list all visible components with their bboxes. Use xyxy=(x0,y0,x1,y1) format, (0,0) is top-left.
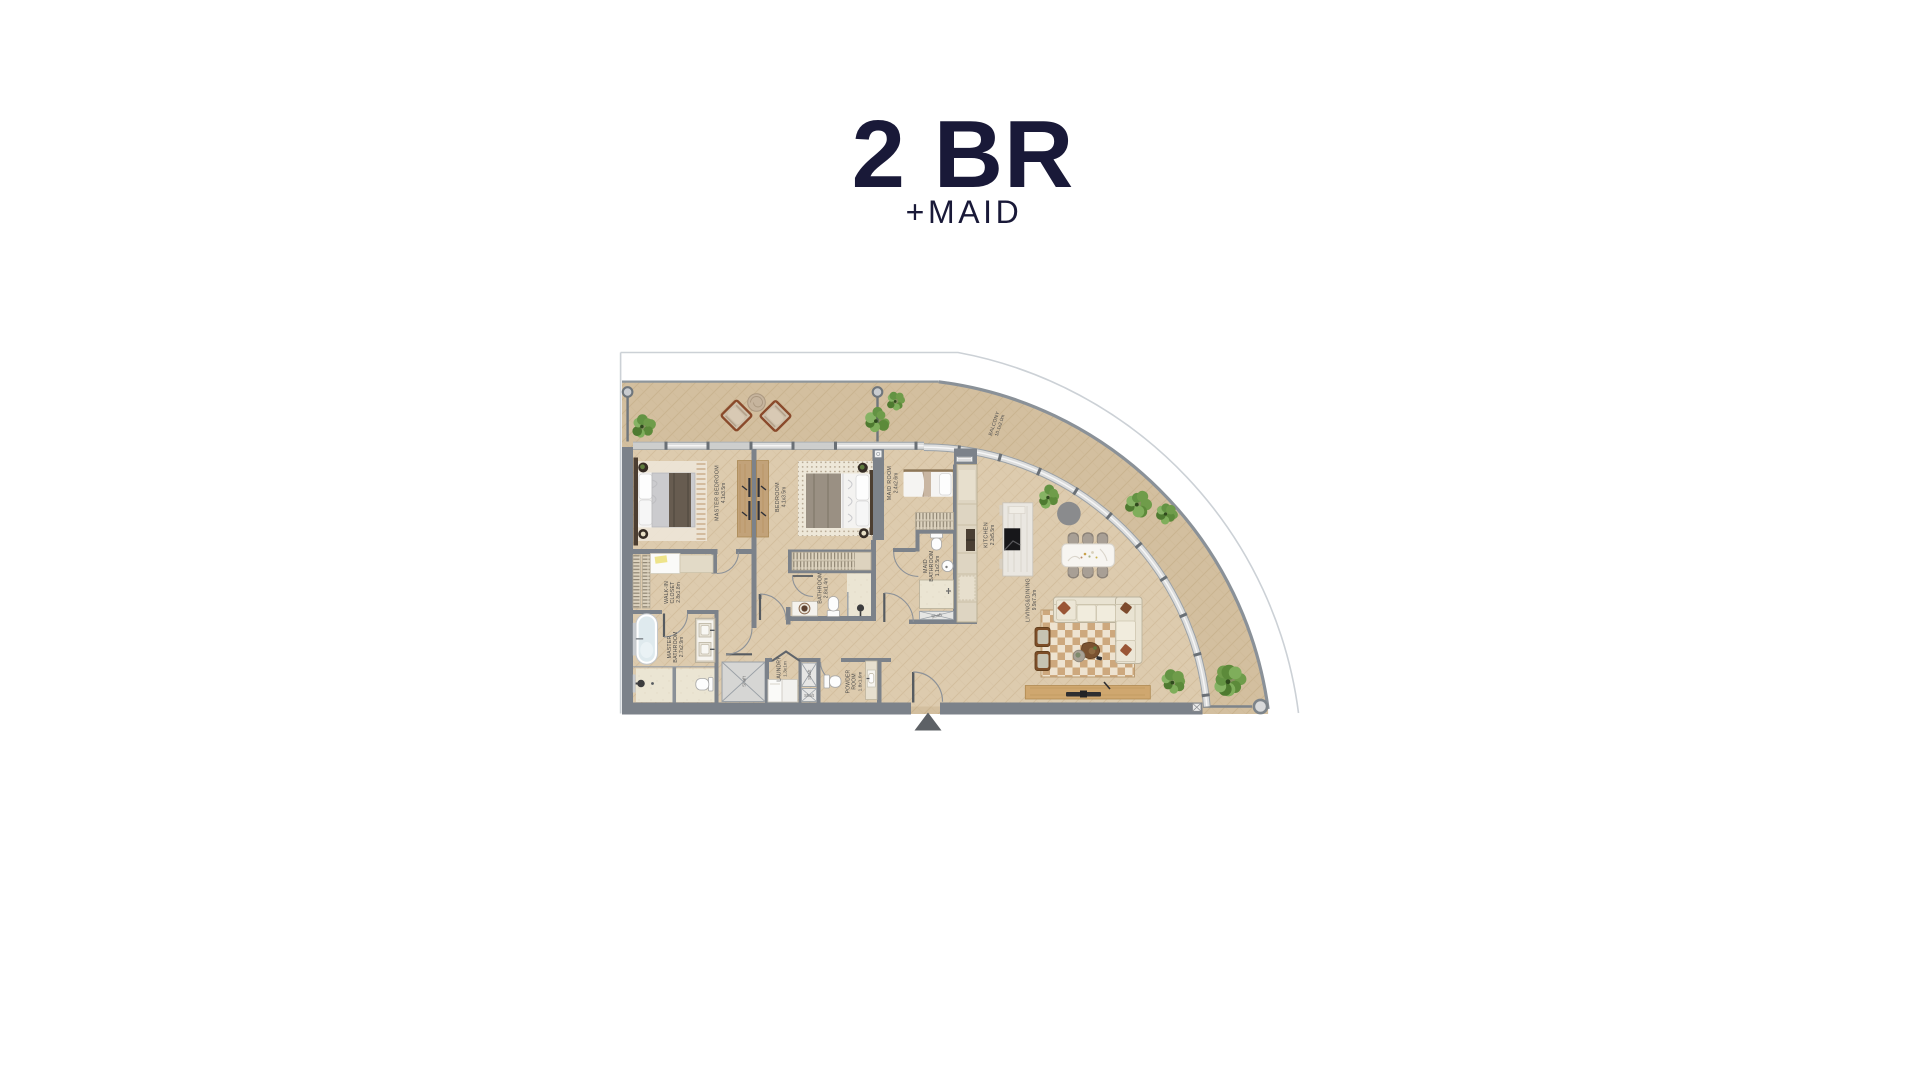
svg-text:Shaft: Shaft xyxy=(804,693,815,698)
svg-text:2.8x1.8m: 2.8x1.8m xyxy=(676,582,682,603)
svg-text:LIVING&DINING: LIVING&DINING xyxy=(1026,578,1032,622)
svg-text:1.8x1.6m: 1.8x1.6m xyxy=(858,672,864,692)
svg-text:2.7x2.9m: 2.7x2.9m xyxy=(679,637,685,658)
svg-text:1.3x1m: 1.3x1m xyxy=(783,661,789,677)
svg-text:4.1x3.5m: 4.1x3.5m xyxy=(721,483,727,504)
svg-text:9.9x7.3m: 9.9x7.3m xyxy=(1032,590,1038,611)
svg-text:1.1x2.5m: 1.1x2.5m xyxy=(935,556,941,577)
svg-text:MASTER BEDROOM: MASTER BEDROOM xyxy=(715,465,721,521)
svg-text:2.4x2.6m: 2.4x2.6m xyxy=(894,473,900,494)
svg-text:ROOM: ROOM xyxy=(852,673,858,689)
svg-text:2.8x1.4m: 2.8x1.4m xyxy=(824,578,830,599)
svg-text:LAUNDRY: LAUNDRY xyxy=(777,656,783,682)
svg-text:4.1x3.5m: 4.1x3.5m xyxy=(782,487,788,508)
svg-text:KITCHEN: KITCHEN xyxy=(984,522,990,548)
svg-text:2.3x5.5m: 2.3x5.5m xyxy=(990,525,996,546)
svg-text:BEDROOM: BEDROOM xyxy=(775,482,781,512)
svg-text:Shaft: Shaft xyxy=(742,675,747,686)
svg-text:MAID ROOM: MAID ROOM xyxy=(887,466,893,501)
svg-text:Shaft: Shaft xyxy=(807,669,812,680)
